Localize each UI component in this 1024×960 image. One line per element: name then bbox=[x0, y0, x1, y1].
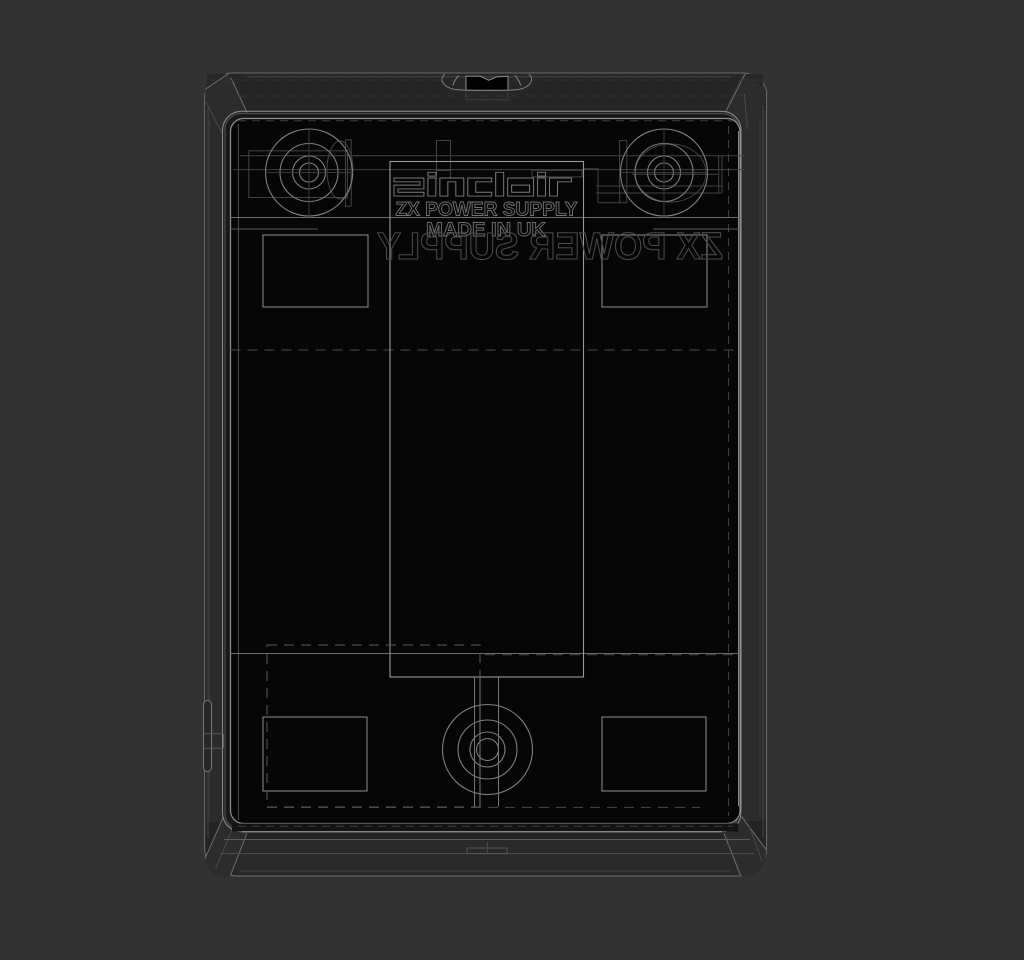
svg-text:ZX POWER SUPPLY: ZX POWER SUPPLY bbox=[377, 226, 723, 268]
svg-text:ZX POWER SUPPLY: ZX POWER SUPPLY bbox=[396, 199, 578, 220]
